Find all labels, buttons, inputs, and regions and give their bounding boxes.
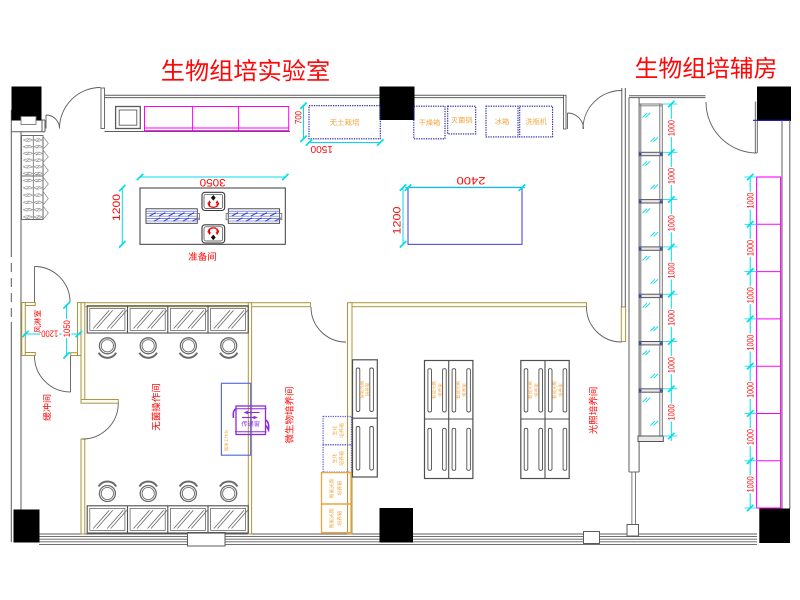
svg-text:700: 700 <box>294 111 305 124</box>
svg-text:1000: 1000 <box>667 168 678 184</box>
svg-text:1000: 1000 <box>746 240 757 256</box>
svg-text:1000: 1000 <box>746 287 757 303</box>
svg-text:1050: 1050 <box>62 320 73 337</box>
svg-text:1000: 1000 <box>746 335 757 351</box>
svg-text:1000: 1000 <box>746 429 757 445</box>
svg-text:1200: 1200 <box>111 194 123 221</box>
svg-text:1200: 1200 <box>391 207 403 235</box>
svg-text:1200: 1200 <box>41 328 58 339</box>
svg-text:3050: 3050 <box>200 176 226 188</box>
svg-text:1000: 1000 <box>667 215 678 231</box>
svg-text:1000: 1000 <box>746 193 757 209</box>
svg-text:1000: 1000 <box>746 382 757 398</box>
svg-text:1000: 1000 <box>667 404 678 420</box>
svg-text:1000: 1000 <box>746 476 757 492</box>
svg-text:2400: 2400 <box>457 174 486 186</box>
svg-text:1000: 1000 <box>667 263 678 279</box>
svg-text:1500: 1500 <box>310 143 333 154</box>
svg-text:1000: 1000 <box>667 120 678 136</box>
svg-text:1000: 1000 <box>667 310 678 326</box>
svg-text:1000: 1000 <box>667 357 678 373</box>
